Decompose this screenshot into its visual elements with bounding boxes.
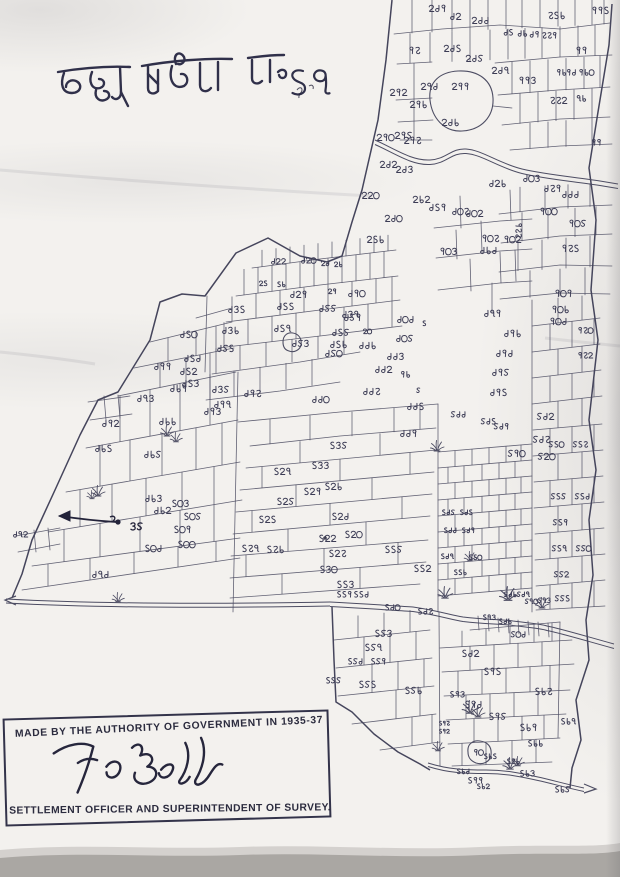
plot-number — [388, 353, 404, 359]
plot-number — [557, 69, 565, 75]
plot-number — [551, 494, 565, 500]
plot-number — [470, 555, 482, 560]
plot-number — [530, 31, 538, 37]
plot-number — [396, 166, 412, 172]
plot-number — [175, 526, 190, 533]
plot-number — [505, 330, 521, 337]
plot-number — [229, 306, 245, 312]
plot-number — [554, 572, 569, 577]
plot-number — [577, 95, 585, 101]
map-title — [58, 53, 330, 106]
plot-number — [326, 483, 341, 490]
plot-number — [272, 259, 286, 265]
plot-number — [491, 389, 507, 396]
plot-number — [492, 67, 509, 73]
plot-number — [417, 388, 420, 393]
plot-number — [360, 342, 376, 349]
plot-number — [93, 571, 108, 577]
plot-number — [338, 591, 351, 597]
plot-number — [205, 408, 221, 415]
plot-number — [215, 401, 231, 408]
plot-number — [333, 513, 348, 519]
plot-number — [313, 462, 329, 468]
plot-number — [562, 718, 576, 724]
authority-stamp: MADE BY THE AUTHORITY OF GOVERNMENT IN 1… — [3, 709, 332, 826]
plot-number — [410, 101, 426, 108]
plot-number — [493, 369, 509, 376]
plot-number — [563, 245, 578, 252]
plot-number — [330, 550, 346, 557]
plot-number — [380, 161, 397, 167]
plot-number — [553, 306, 568, 313]
grass-tuft-icon — [170, 432, 182, 441]
plot-number — [333, 329, 349, 335]
plot-number — [223, 327, 239, 334]
plot-number — [466, 55, 482, 61]
plot-number — [573, 442, 587, 448]
plot-number — [278, 282, 285, 287]
plot-number — [275, 325, 291, 331]
plot-number — [443, 510, 455, 515]
plot-number — [305, 488, 320, 495]
plot-number — [553, 519, 567, 525]
plot-number — [213, 386, 229, 392]
plot-number — [567, 69, 575, 75]
grass-tuft-icon — [438, 587, 453, 599]
plot-number — [579, 327, 593, 333]
plot-number — [472, 17, 488, 23]
plot-number — [452, 83, 468, 90]
plot-number — [421, 83, 437, 89]
plot-number — [423, 321, 426, 326]
plot-number — [517, 592, 529, 597]
plot-number — [331, 442, 347, 448]
plot-number — [551, 97, 567, 103]
plot-number — [349, 659, 362, 665]
plot-number — [181, 368, 197, 374]
plot-number — [545, 185, 560, 192]
plot-number — [259, 281, 267, 286]
plot-number — [278, 498, 294, 504]
plot-number — [441, 248, 456, 255]
plot-number — [455, 570, 467, 575]
plot-number — [243, 545, 259, 552]
plot-number — [576, 546, 591, 552]
grass-tuft-icon — [112, 592, 124, 601]
plot-number — [490, 180, 506, 187]
plot-number — [413, 196, 430, 203]
plot-number — [327, 678, 341, 684]
paper-creases — [0, 170, 620, 364]
plot-number — [260, 516, 275, 522]
plot-number — [440, 729, 450, 733]
plot-number — [440, 721, 450, 725]
plot-number — [466, 701, 481, 708]
plot-number — [313, 396, 330, 403]
plot-number — [410, 47, 420, 54]
plot-number — [575, 494, 589, 500]
plot-number — [328, 289, 335, 294]
plot-number — [320, 305, 336, 311]
plot-number — [494, 423, 508, 429]
ponds — [283, 71, 493, 764]
plot-number — [445, 528, 456, 533]
plot-number — [338, 581, 354, 587]
mouza-boundary — [12, 0, 612, 788]
plot-number — [521, 724, 536, 731]
scanned-page: MADE BY THE AUTHORITY OF GOVERNMENT IN 1… — [0, 0, 620, 877]
plot-number — [469, 777, 482, 783]
plot-number — [366, 644, 382, 650]
plot-number — [549, 12, 564, 19]
pen-annotations — [59, 511, 327, 540]
plot-number — [483, 235, 499, 242]
plot-number — [442, 119, 458, 126]
plot-number — [555, 596, 569, 602]
plot-number — [508, 450, 525, 457]
plot-number — [529, 740, 543, 746]
plot-number — [146, 545, 161, 552]
plot-number — [326, 350, 343, 357]
plot-number — [349, 290, 366, 297]
plot-number — [397, 335, 413, 342]
plot-number — [593, 7, 608, 14]
scan-shadow — [0, 843, 620, 877]
plot-number — [292, 70, 329, 94]
plot-number — [145, 451, 161, 458]
plot-number — [173, 500, 189, 507]
plot-number — [367, 236, 383, 243]
plot-number — [490, 713, 506, 720]
stamp-line2: SETTLEMENT OFFICER AND SUPERINTENDENT OF… — [9, 802, 325, 816]
plot-number — [364, 388, 380, 394]
plot-number — [320, 535, 336, 541]
plot-number — [551, 318, 566, 325]
plot-number — [415, 565, 431, 571]
plot-number — [363, 329, 371, 334]
plot-number — [525, 599, 538, 604]
plot-number — [385, 215, 402, 222]
plot-number — [463, 650, 479, 656]
plot-number — [377, 134, 394, 141]
plot-number — [185, 513, 201, 520]
plot-number — [386, 546, 402, 552]
plot-number — [497, 350, 512, 357]
plot-number — [360, 681, 375, 687]
grass-tuft-icon — [500, 587, 518, 601]
plot-number — [563, 191, 578, 197]
plot-number — [275, 468, 291, 474]
roads — [5, 140, 618, 793]
signature — [35, 729, 287, 802]
plot-number — [549, 442, 564, 448]
plot-number — [155, 363, 170, 370]
grass-tuft-icon — [431, 441, 445, 452]
plot-number — [390, 89, 407, 96]
plot-number — [516, 224, 522, 238]
plot-number — [474, 749, 483, 755]
plot-number — [401, 371, 409, 377]
plot-number — [355, 592, 368, 598]
plot-number — [543, 32, 556, 38]
plot-number — [580, 69, 594, 75]
plot-number — [520, 77, 535, 84]
grass-tuft-icon — [462, 701, 478, 714]
plot-number — [376, 366, 392, 372]
plot-number — [451, 691, 465, 697]
plot-number — [511, 632, 525, 638]
plot-number — [138, 395, 154, 401]
plot-number — [579, 352, 593, 358]
plot-number — [429, 5, 445, 12]
plot-number — [334, 262, 342, 267]
plot-number — [346, 531, 362, 538]
plot-number — [537, 413, 554, 419]
plot-number — [103, 420, 119, 427]
plot-number — [408, 403, 424, 409]
plot-number — [398, 316, 413, 323]
plot-number — [467, 210, 483, 217]
plot-number — [533, 436, 550, 442]
plot-number — [146, 495, 162, 502]
plot-number — [245, 390, 261, 397]
plot-number — [451, 412, 465, 418]
plot-number — [552, 546, 566, 552]
plot-number — [442, 554, 454, 559]
plot-number — [160, 418, 176, 425]
plot-number — [481, 419, 495, 425]
plot-number — [430, 204, 445, 211]
plot-boundaries — [16, 0, 612, 766]
grass-tuft-icon — [161, 426, 175, 437]
plot-number — [395, 132, 411, 139]
plot-number — [570, 220, 585, 227]
plot-number — [478, 784, 490, 789]
